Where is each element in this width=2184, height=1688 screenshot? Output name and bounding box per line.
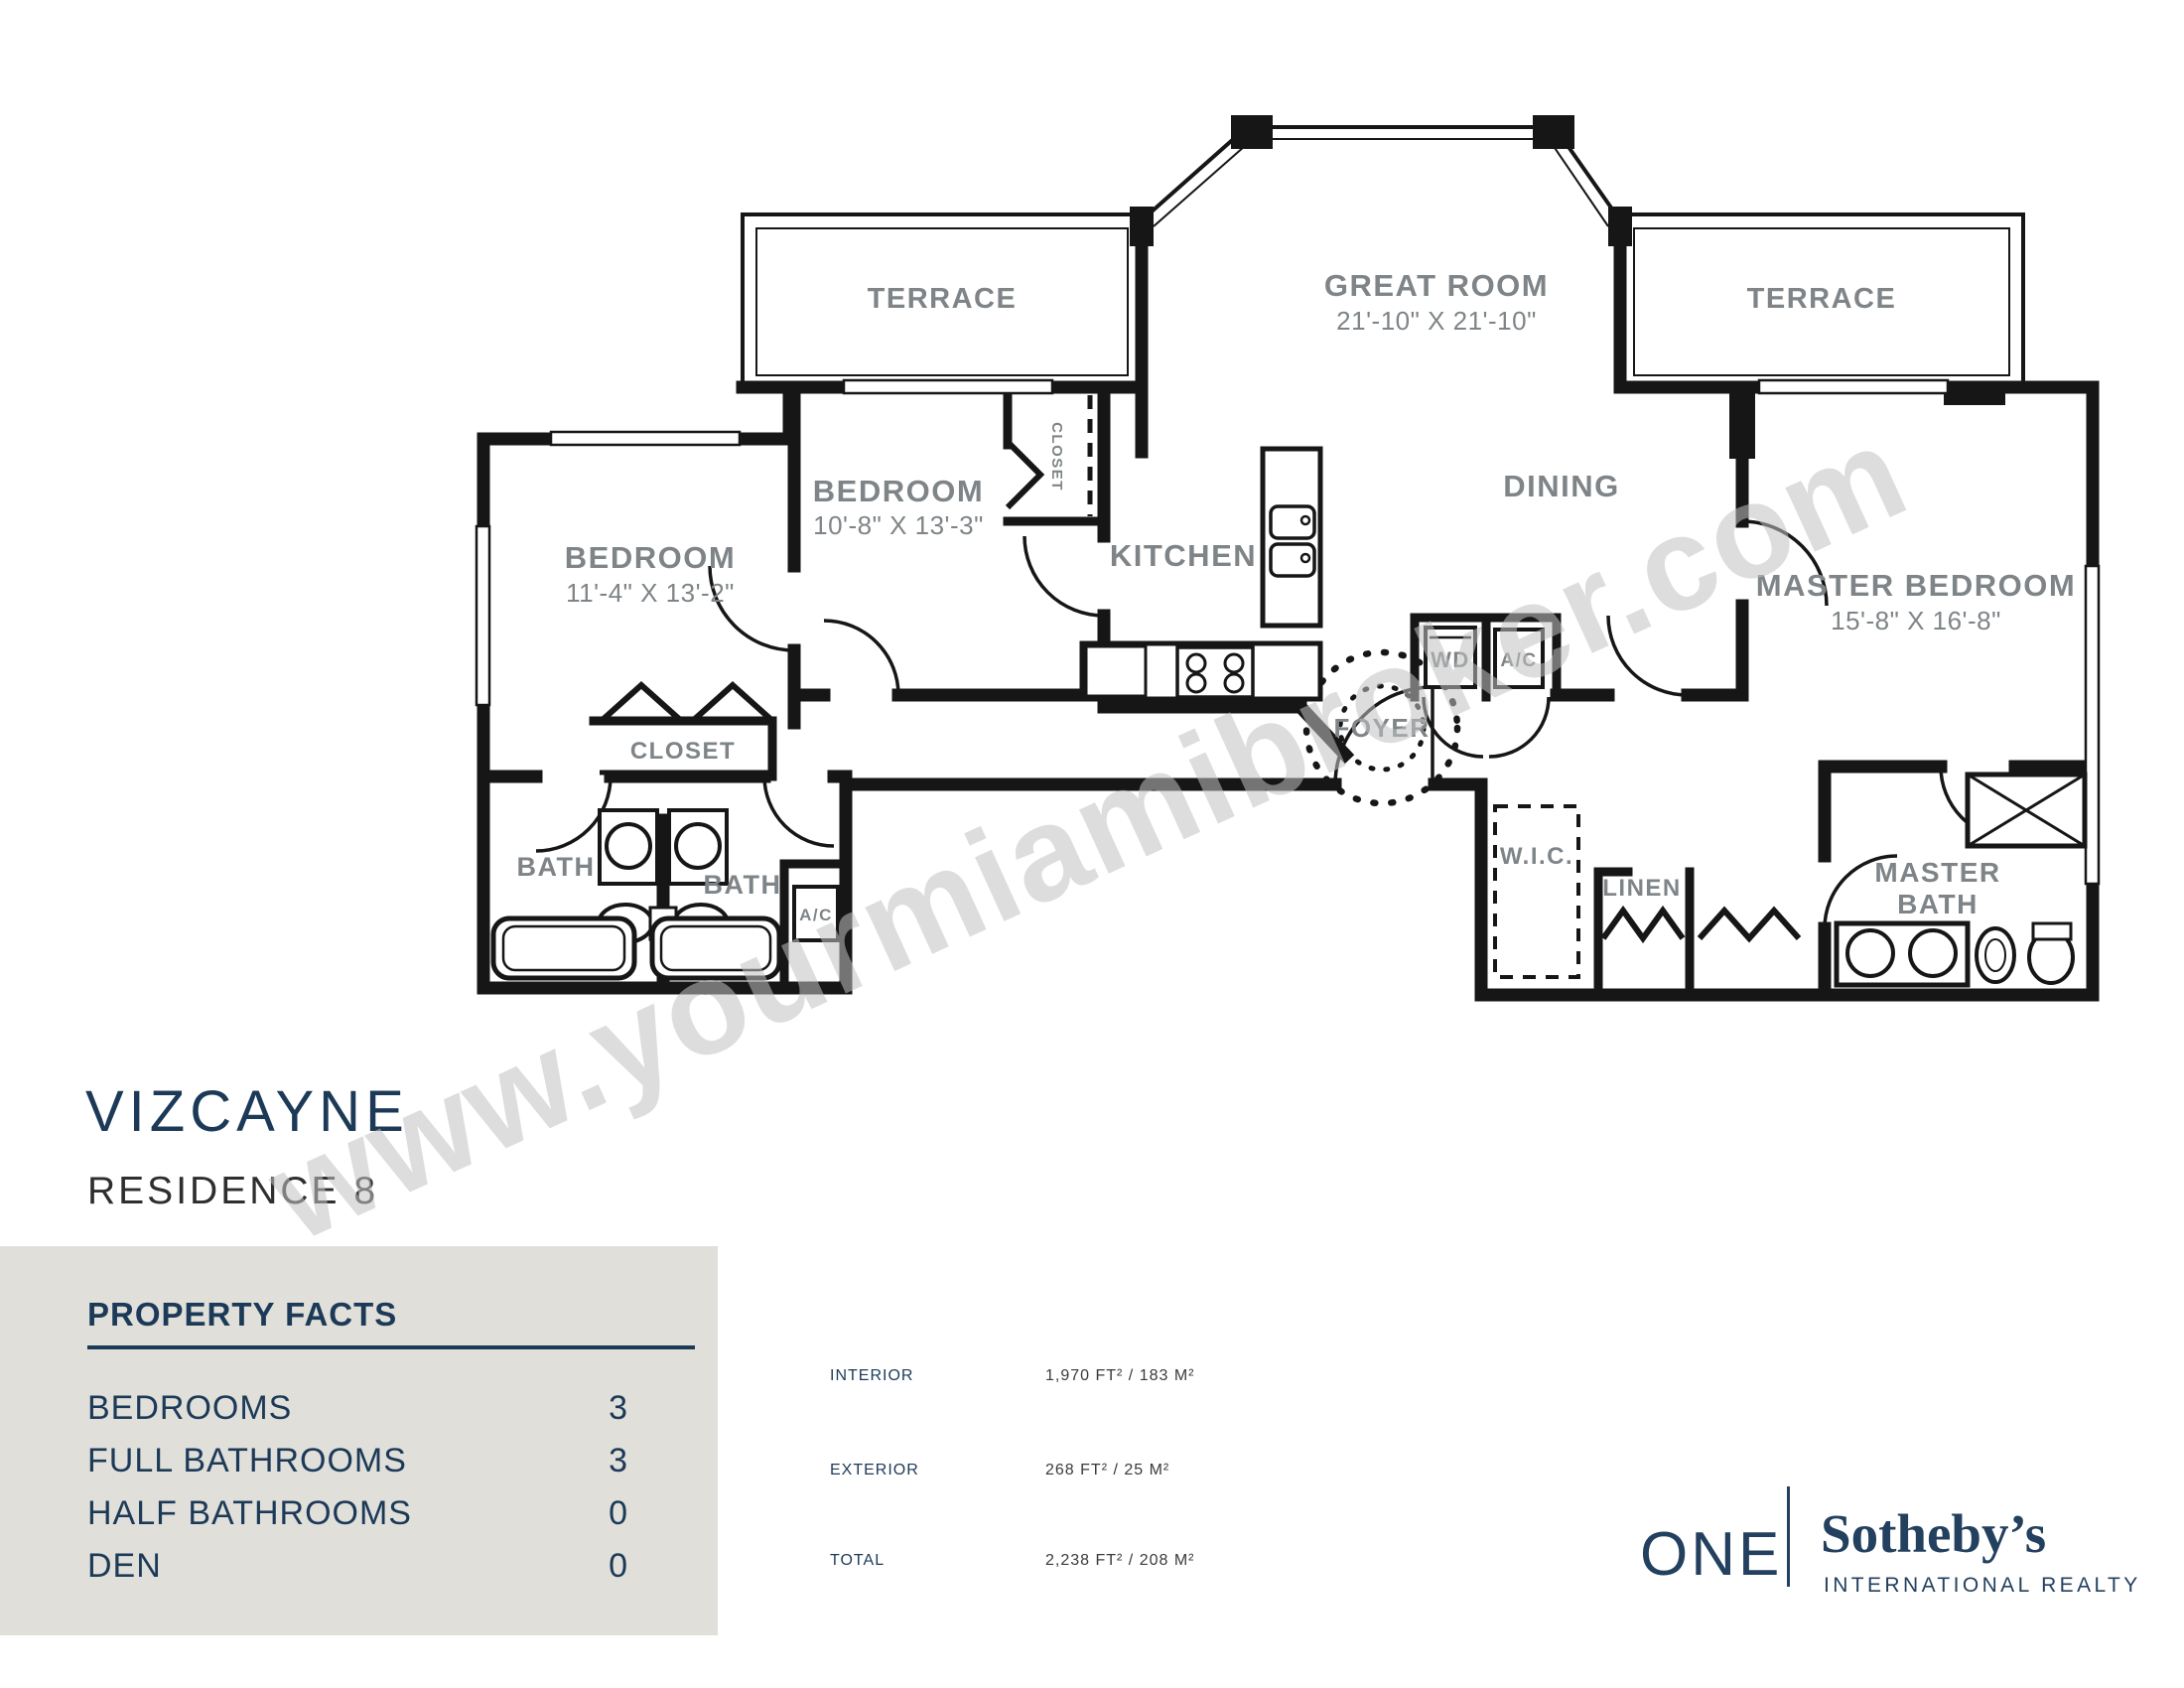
area-label: EXTERIOR [830,1462,919,1479]
fact-row-half-bathrooms: HALF BATHROOMS 0 [87,1494,628,1533]
brokerage-logo-sothebys: Sotheby’s [1821,1502,2046,1565]
fact-row-full-bathrooms: FULL BATHROOMS 3 [87,1442,628,1480]
flyer-page: VIZCAYNE RESIDENCE 8 PROPERTY FACTS BEDR… [0,0,2184,1688]
area-value: 268 FT² / 25 M² [1045,1462,1169,1479]
page-title: VIZCAYNE [85,1078,409,1145]
fact-value: 3 [609,1442,628,1480]
fact-row-den: DEN 0 [87,1547,628,1586]
area-label: TOTAL [830,1552,885,1570]
fact-label: FULL BATHROOMS [87,1442,407,1480]
residence-subtitle: RESIDENCE 8 [87,1170,378,1213]
logo-divider [1787,1486,1790,1587]
fact-row-bedrooms: BEDROOMS 3 [87,1389,628,1428]
fact-value: 0 [609,1547,628,1586]
brokerage-logo-one: ONE [1640,1519,1782,1590]
brokerage-logo-subtitle: INTERNATIONAL REALTY [1824,1574,2141,1598]
fact-label: HALF BATHROOMS [87,1494,412,1533]
property-facts-panel: PROPERTY FACTS BEDROOMS 3 FULL BATHROOMS… [0,1246,718,1635]
area-value: 2,238 FT² / 208 M² [1045,1552,1195,1570]
property-facts-underline [87,1345,695,1349]
info-section: VIZCAYNE RESIDENCE 8 PROPERTY FACTS BEDR… [0,0,2184,1688]
fact-label: DEN [87,1547,162,1586]
fact-value: 0 [609,1494,628,1533]
area-label: INTERIOR [830,1367,913,1385]
property-facts-heading: PROPERTY FACTS [87,1296,397,1334]
fact-value: 3 [609,1389,628,1428]
area-value: 1,970 FT² / 183 M² [1045,1367,1195,1385]
fact-label: BEDROOMS [87,1389,292,1428]
